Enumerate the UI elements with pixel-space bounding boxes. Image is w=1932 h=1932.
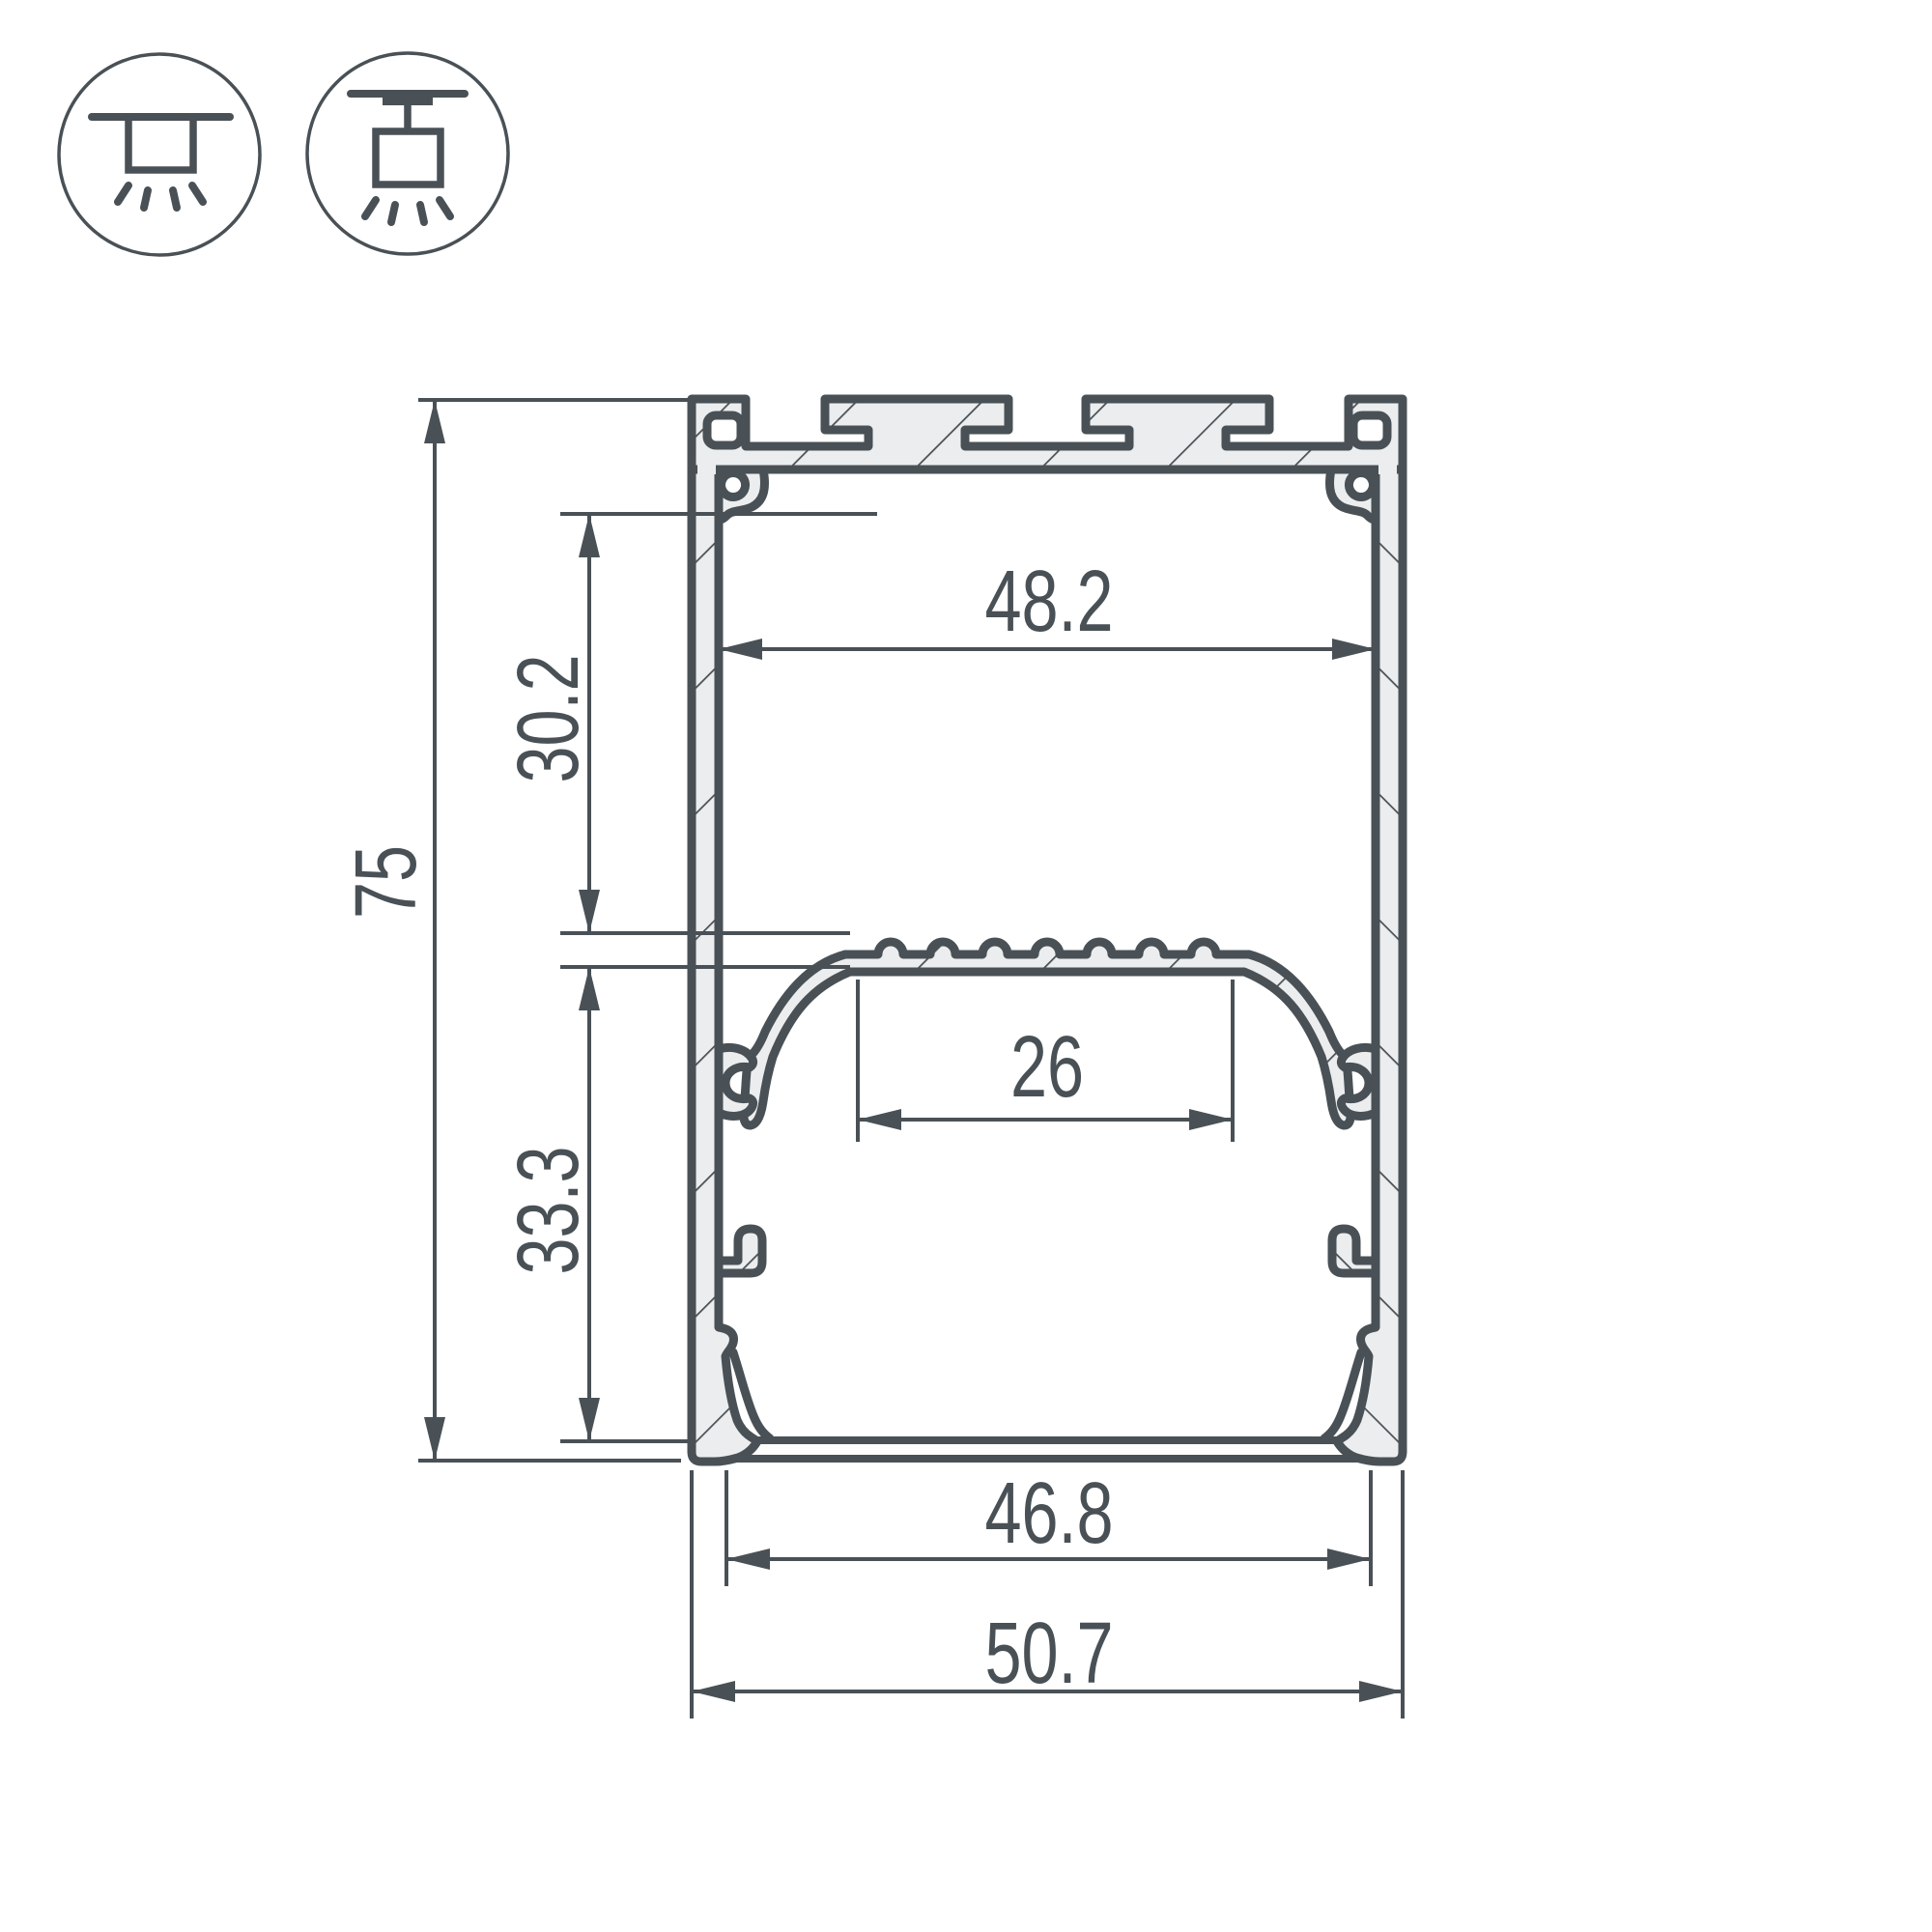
svg-text:48.2: 48.2 (984, 553, 1113, 649)
svg-text:75: 75 (337, 845, 434, 919)
svg-text:30.2: 30.2 (499, 654, 596, 782)
svg-text:46.8: 46.8 (984, 1464, 1113, 1561)
svg-text:33.3: 33.3 (499, 1146, 596, 1274)
svg-text:50.7: 50.7 (984, 1605, 1113, 1701)
svg-text:26: 26 (1010, 1018, 1084, 1115)
